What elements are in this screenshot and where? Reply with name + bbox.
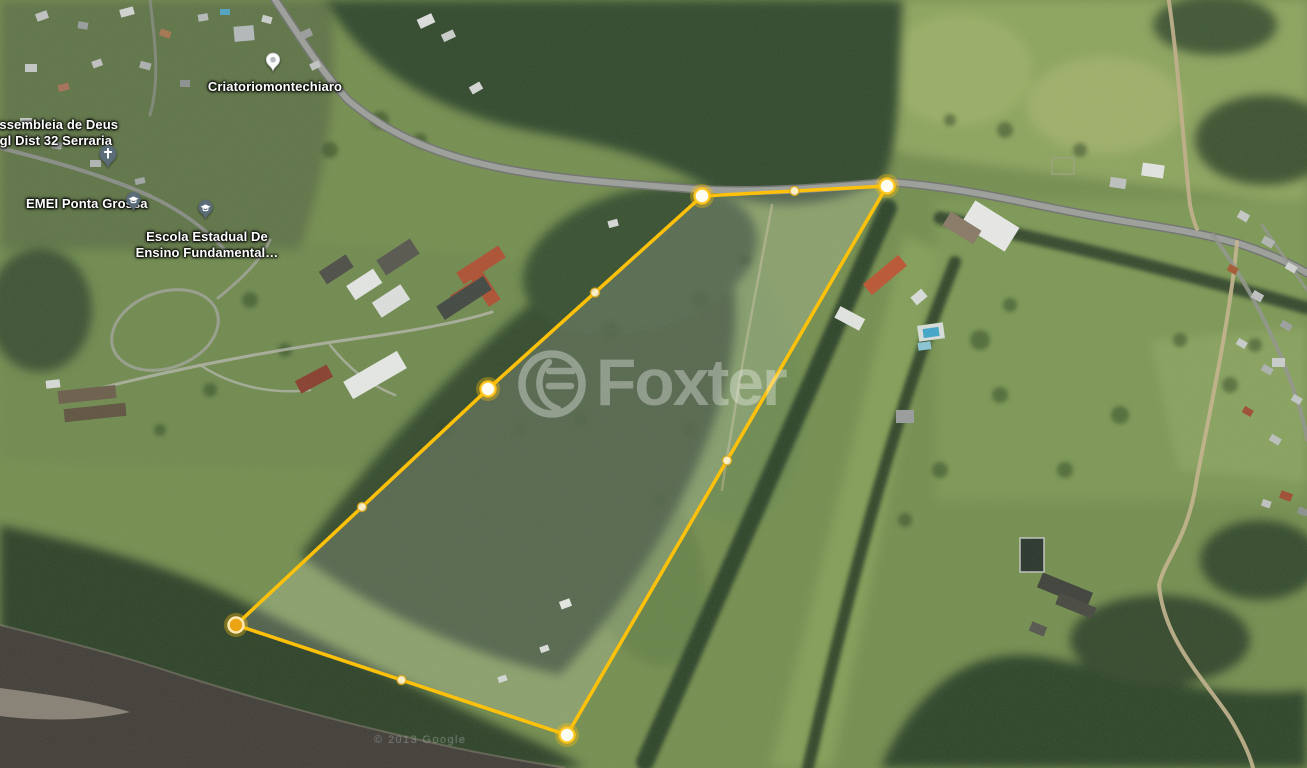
polygon-midpoint-handle[interactable] [790, 187, 799, 196]
poi-label-line: Ensino Fundamental… [127, 245, 287, 261]
church-pin-icon[interactable] [98, 144, 118, 169]
place-pin-icon[interactable] [265, 52, 281, 72]
polygon-midpoint-handle[interactable] [397, 676, 406, 685]
poi-label-escola[interactable]: Escola Estadual De Ensino Fundamental… [127, 229, 287, 261]
polygon-vertex-active[interactable] [229, 618, 244, 633]
polygon-vertex[interactable] [481, 382, 496, 397]
polygon-vertex[interactable] [880, 179, 895, 194]
polygon-midpoint-handle[interactable] [723, 456, 732, 465]
school-pin-icon[interactable] [197, 199, 214, 220]
poi-label-line: Escola Estadual De [127, 229, 287, 245]
polygon-midpoint-handle[interactable] [358, 503, 367, 512]
poi-label-criatorio[interactable]: Criatoriomontechiaro [195, 79, 355, 95]
polygon-vertex[interactable] [695, 189, 710, 204]
imagery-credit: © 2013 Google [374, 734, 466, 747]
polygon-midpoint-handle[interactable] [591, 288, 600, 297]
school-pin-icon[interactable] [125, 191, 142, 212]
poi-label-line: Assembleia de Deus [0, 117, 124, 133]
polygon-vertex[interactable] [560, 728, 575, 743]
map-canvas[interactable]: Foxter © 2013 Google Assembleia de Deus … [0, 0, 1307, 768]
foxter-watermark: Foxter [596, 349, 786, 415]
